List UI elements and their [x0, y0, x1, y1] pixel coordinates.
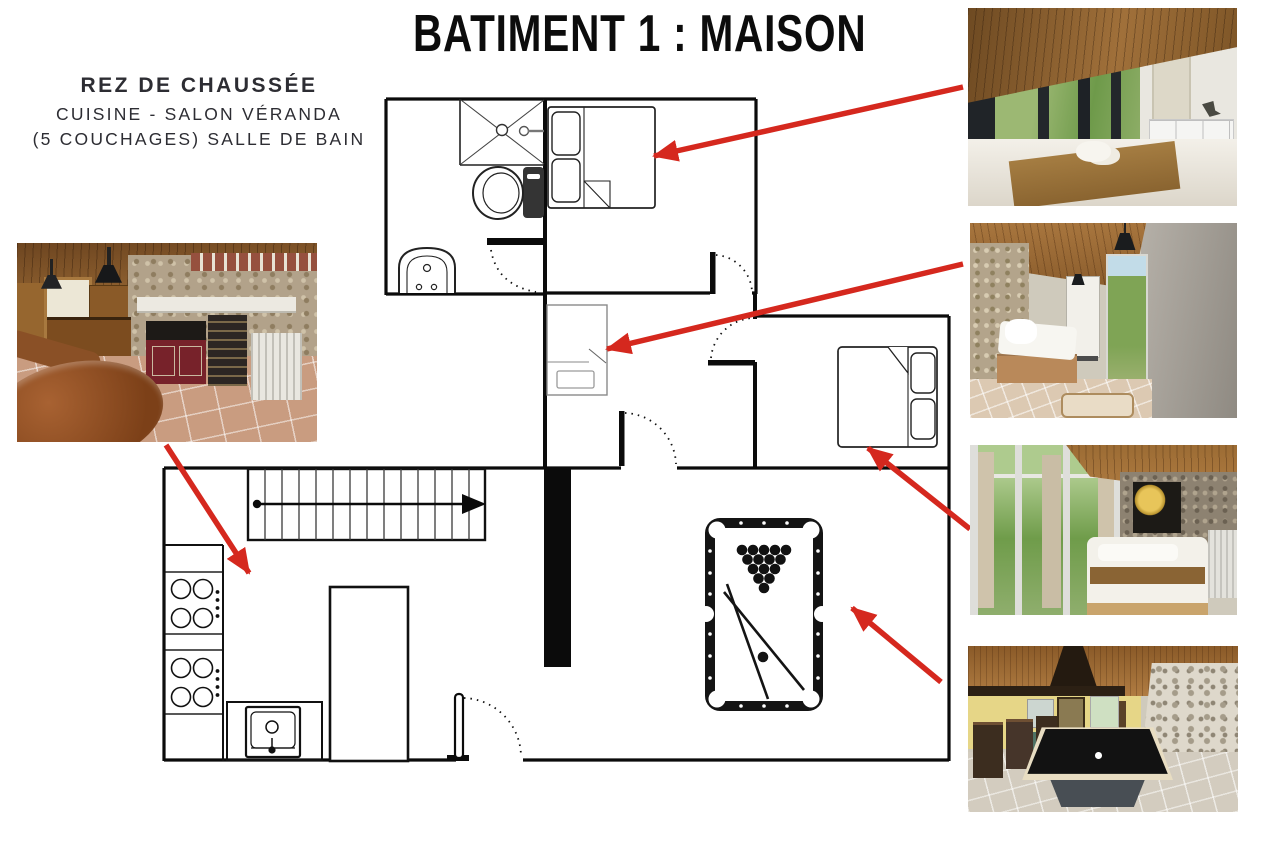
arrow-bedroom2 [868, 448, 970, 529]
curtain [978, 452, 994, 608]
arrow-hall-bed [607, 264, 963, 349]
oven-door [152, 346, 175, 376]
arrow-bedroom1 [654, 87, 963, 156]
curtain [1042, 455, 1061, 608]
brick-row [191, 253, 317, 271]
gold-mandala-icon [1133, 482, 1167, 518]
radiator [1208, 530, 1237, 598]
glass-door [1106, 254, 1147, 383]
toilet-icon [473, 167, 544, 219]
window-frame [1015, 445, 1022, 615]
stairs-icon [248, 469, 486, 540]
single-bed-icon-hall [547, 305, 607, 395]
lamp-cord [107, 247, 111, 267]
door-bedroom1 [710, 252, 752, 294]
cue-ball [1095, 752, 1102, 759]
double-bed-icon-bedroom2 [838, 347, 937, 447]
billiard-room-photo [968, 646, 1238, 812]
towels [1076, 141, 1111, 163]
rug [1061, 393, 1134, 418]
door-hall-livingroom [619, 411, 676, 466]
stove-icon-1 [172, 580, 220, 628]
veranda-lounge-photo [970, 223, 1237, 418]
kitchen-counters [164, 545, 408, 761]
veranda-bedroom-photo [968, 8, 1237, 206]
chair [1006, 719, 1033, 768]
veranda-bedroom2-photo [970, 445, 1237, 615]
kitchen-sink-icon [246, 707, 300, 757]
wall-art [1133, 482, 1181, 533]
window-frame [970, 445, 978, 615]
stove-icon-2 [172, 659, 220, 707]
radiator [251, 333, 302, 401]
kitchen-photo [17, 243, 317, 442]
shower-icon [460, 99, 544, 165]
upper-cabinet [89, 285, 130, 321]
pillow [1005, 319, 1037, 344]
oven-door [179, 346, 202, 376]
bed-throw [1090, 567, 1205, 584]
picture-frame [1090, 696, 1119, 728]
double-bed-icon-bedroom1 [548, 107, 655, 208]
arrow-billiard [852, 608, 941, 682]
pool-table-icon [698, 518, 830, 711]
bed-frame [1087, 603, 1207, 615]
pillow [1098, 544, 1178, 561]
shelf-alcove [208, 315, 247, 387]
door-bathroom [487, 238, 545, 292]
lamp-cord [50, 259, 53, 277]
cue-ball-icon [758, 652, 769, 663]
thick-wall-segment [544, 468, 571, 667]
mantel-beam [137, 297, 296, 313]
grey-wall [1141, 223, 1237, 418]
flyer-page: BATIMENT 1 : MAISON REZ DE CHAUSSÉE CUIS… [0, 0, 1280, 850]
chair [973, 722, 1003, 778]
arrow-kitchen [166, 445, 249, 573]
bathroom-sink-icon [399, 248, 455, 293]
window-frame [1063, 445, 1070, 615]
door-livingroom-exterior [447, 694, 521, 761]
ceiling-beam [968, 686, 1125, 696]
